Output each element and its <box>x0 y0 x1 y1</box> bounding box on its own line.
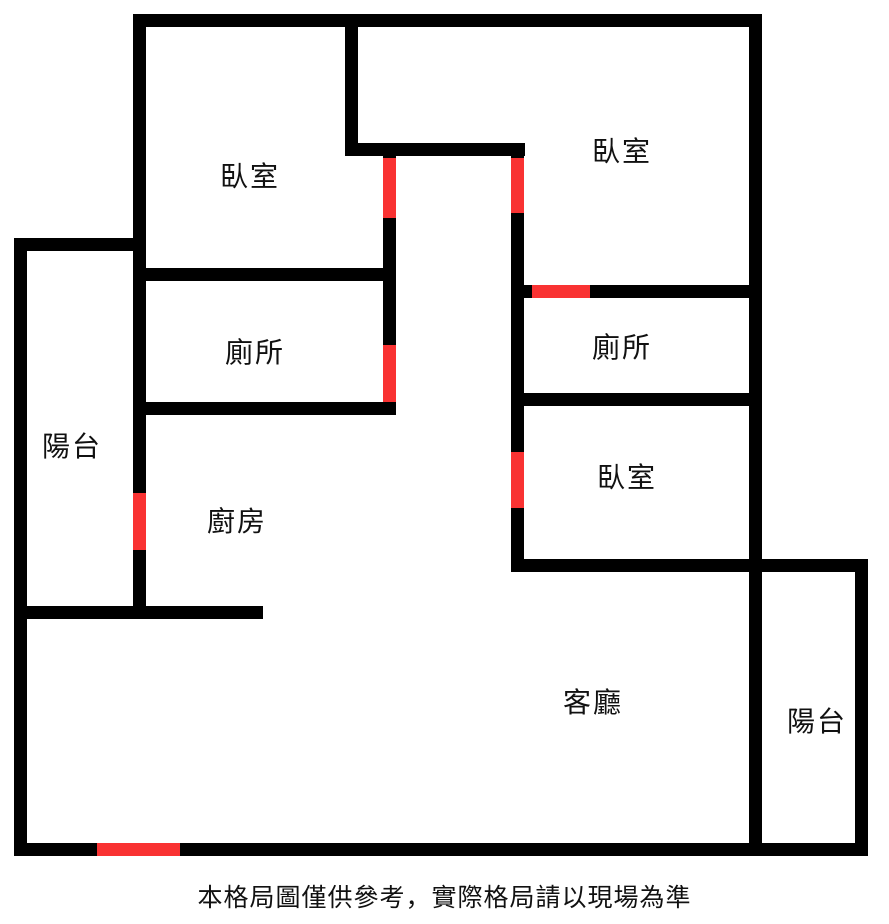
floor-plan-drawing: 臥室臥室廁所廁所陽台廚房臥室客廳陽台 <box>0 0 889 924</box>
wall-toilet-left-bottom <box>133 402 396 415</box>
wall-outer-left <box>14 238 27 856</box>
door-bedroom-right-door <box>511 452 524 508</box>
door-bedroom-topleft-door <box>383 158 396 218</box>
wall-kitchen-bottom <box>15 606 263 619</box>
wall-outer-top <box>133 14 762 27</box>
room-label-bedroom-right: 臥室 <box>597 464 657 492</box>
floor-plan-image: 臥室臥室廁所廁所陽台廚房臥室客廳陽台 本格局圖僅供參考，實際格局請以現場為準 <box>0 0 889 924</box>
room-label-bedroom-top-left: 臥室 <box>220 163 280 191</box>
room-label-toilet-left: 廁所 <box>225 339 285 367</box>
wall-balcony-left-top <box>14 238 133 251</box>
disclaimer-text: 本格局圖僅供參考，實際格局請以現場為準 <box>0 878 889 914</box>
door-toilet-left-door <box>383 345 396 402</box>
room-label-toilet-right: 廁所 <box>592 334 652 362</box>
room-label-kitchen: 廚房 <box>207 508 267 536</box>
door-bedroom-topright-door <box>511 158 524 213</box>
wall-bedroom-right-bottom-balcony-top <box>511 559 868 572</box>
room-label-balcony-right: 陽台 <box>787 708 847 736</box>
wall-outer-right <box>749 14 762 856</box>
door-main-entrance-door <box>97 843 180 856</box>
wall-bedroom-topleft-right-upper <box>345 14 358 155</box>
wall-balcony-right-outer <box>855 559 868 856</box>
room-label-living-room: 客廳 <box>563 689 623 717</box>
wall-toilet-right-bottom <box>511 393 762 406</box>
door-toilet-right-door <box>532 285 590 298</box>
room-label-bedroom-top-right: 臥室 <box>592 138 652 166</box>
wall-bedroom-topleft-bottom <box>133 268 396 281</box>
door-balcony-left-door <box>133 493 146 550</box>
room-label-balcony-left: 陽台 <box>42 433 102 461</box>
wall-hallway-top-jog <box>345 143 525 156</box>
